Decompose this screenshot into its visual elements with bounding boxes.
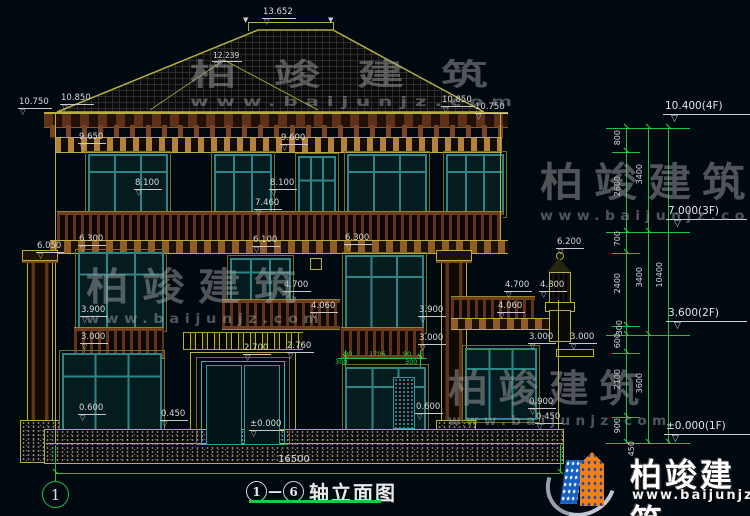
vertical-dim: 3600: [636, 373, 644, 393]
frieze-band: [55, 137, 502, 153]
detail-dim: 300: [405, 359, 417, 366]
dimension-line: [626, 128, 627, 443]
level-label: 4.060: [310, 302, 338, 319]
roof-outline: [57, 30, 484, 112]
vertical-dim: 900: [614, 418, 622, 433]
level-label: 6.100: [252, 236, 280, 253]
logo-url: www.baijunjz.com: [632, 488, 750, 503]
level-label: 3.000: [80, 333, 108, 350]
detail-dim: 90: [403, 351, 411, 358]
level-label: 8.100: [134, 179, 162, 196]
brand-logo: 柏竣建筑 www.baijunjz.com: [545, 444, 750, 516]
level-label: 9.600: [280, 134, 308, 151]
title-dash: —: [268, 484, 282, 500]
elevation-flag: ±0.000(1F): [664, 420, 750, 443]
axis-bubble-1: 1: [42, 481, 69, 508]
title-axis-to: 6: [283, 481, 304, 502]
vertical-dim: 3400: [636, 267, 644, 287]
level-label: 0.450: [160, 410, 188, 427]
elevation-flag: 7.000(3F): [666, 205, 747, 228]
level-label: 3.900: [80, 306, 108, 323]
level-label: 3.000: [418, 334, 446, 351]
level-label: 0.600: [78, 404, 106, 421]
level-label: 10.750: [474, 103, 508, 120]
level-label: 0.450: [535, 413, 563, 430]
dimension-line: [612, 152, 640, 153]
level-label: 4.700: [504, 281, 532, 298]
window-2f-mid: [230, 258, 291, 306]
window-1f-left: [62, 353, 162, 434]
vertical-dim: 3400: [636, 164, 644, 184]
level-label: 4.800: [539, 281, 567, 298]
level-label: 10.750: [18, 98, 52, 115]
dimension-line: [606, 128, 690, 129]
level-label: 2.760: [286, 342, 314, 359]
wing-slab: [451, 318, 558, 330]
level-label: 8.100: [269, 179, 297, 196]
detail-dim: 300: [335, 359, 347, 366]
structure-line: [558, 300, 559, 430]
detail-dim: 1706: [369, 351, 386, 358]
level-label: 6.050: [36, 242, 64, 259]
structure-line: [55, 113, 56, 443]
level-label: 0.600: [415, 403, 443, 420]
dimension-line: [648, 128, 649, 443]
vertical-dim: 2100: [614, 369, 622, 389]
dimension-line: [612, 253, 640, 254]
level-label: 7.460: [254, 199, 282, 216]
title-underline: [249, 500, 381, 503]
level-label: 9.650: [78, 133, 106, 150]
level-label: 10.850: [441, 96, 475, 113]
vertical-dim: 800: [614, 130, 622, 145]
level-label: 6.300: [78, 235, 106, 252]
title-axis-from: 1: [246, 481, 267, 502]
window-3f-c: [347, 154, 427, 215]
level-label: 10.850: [60, 94, 94, 111]
dimension-line: [55, 445, 56, 482]
window-2f-right: [345, 255, 424, 331]
elevation-flag: 10.400(4F): [663, 100, 750, 123]
level-label: 2.700: [243, 344, 271, 361]
level-label: 12.239: [212, 52, 242, 68]
level-label: ±0.000: [249, 420, 284, 437]
vertical-dim: 600: [614, 333, 622, 348]
total-width-dim: 16500: [278, 454, 310, 465]
dim-arrow: ▼: [328, 17, 333, 24]
level-label: 4.060: [497, 302, 525, 319]
dimension-line: [668, 128, 669, 443]
right-pillar-capital: [436, 250, 472, 261]
left-pillar: [27, 259, 53, 422]
level-label: 3.900: [418, 306, 446, 323]
dimension-line: [55, 473, 560, 474]
level-label: 13.652: [262, 8, 296, 25]
level-label: 3.000: [569, 333, 597, 350]
vertical-dim: 2400: [614, 273, 622, 293]
window-3f-d: [446, 154, 504, 215]
structure-line: [500, 113, 501, 241]
structure-line: [46, 443, 562, 444]
level-label: 3.000: [528, 333, 556, 350]
window-1f-screen-panel: [393, 377, 415, 429]
logo-name: 柏竣建筑: [630, 450, 750, 516]
level-label: 4.700: [283, 281, 311, 298]
vertical-dim: 2600: [614, 176, 622, 196]
detail-dim: 90: [344, 351, 352, 358]
cad-elevation-canvas: 13.65212.23910.75010.85010.85010.7509.65…: [0, 0, 750, 516]
door-leaf-left: [206, 365, 242, 445]
window-1f-wing: [465, 348, 537, 420]
level-label: 6.300: [344, 234, 372, 251]
level-label: 6.200: [556, 238, 584, 255]
wall-ornament: [310, 258, 322, 270]
elevation-flag: 3.600(2F): [666, 307, 747, 330]
vertical-dim: 700: [614, 231, 622, 246]
vertical-dim: 10400: [656, 262, 664, 287]
dim-arrow: ▼: [243, 17, 248, 24]
dimension-line: [612, 353, 640, 354]
